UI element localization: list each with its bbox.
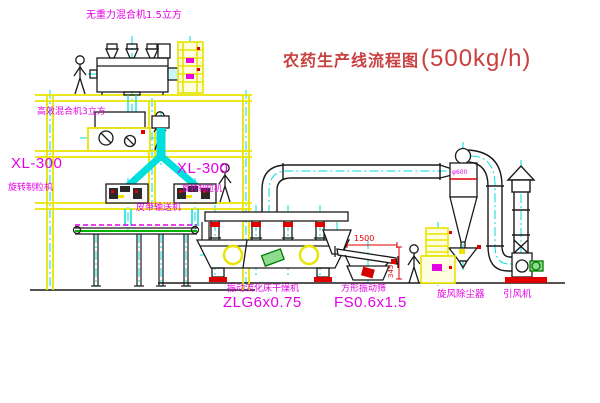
granulator-mid-model-label: XL-300 <box>177 161 228 176</box>
screen-model-label: FS0.6x1.5 <box>334 295 407 310</box>
belt-conveyor-label: 皮带输送机 <box>136 204 181 213</box>
dimension-width-label: 1500 <box>354 235 374 243</box>
cyclone-label: 旋风除尘器 <box>437 290 485 300</box>
title-capacity: (500kg/h) <box>421 45 531 73</box>
belt-conveyor <box>74 222 210 286</box>
title-text: 农药生产线流程图 <box>283 47 419 71</box>
exhaust-stack <box>508 166 534 253</box>
process-flow-diagram: 无重力混合机1.5立方 农药生产线流程图 (500kg/h) 高效混合机3立方 … <box>0 0 600 403</box>
bucket-elevator-2 <box>421 228 455 283</box>
dryer-model-label: ZLG6x0.75 <box>223 295 302 310</box>
screen-name-label: 方形振动筛 <box>341 285 386 294</box>
granulator-left <box>106 184 148 203</box>
granulator-mid-name-label: 旋转制粒机 <box>182 185 222 193</box>
granulator-left-model-label: XL-300 <box>11 156 62 171</box>
bucket-elevator-1 <box>178 42 203 93</box>
granulator-left-name-label: 旋转制粒机 <box>8 184 53 193</box>
diagram-title: 农药生产线流程图 (500kg/h) <box>283 45 531 73</box>
person-figure-top <box>74 56 86 94</box>
person-figure-ground <box>408 245 420 283</box>
high-efficiency-mixer <box>88 112 150 151</box>
cyclone-dust-collector <box>449 149 481 269</box>
cyclone-size-label: φ600 <box>452 170 467 176</box>
dryer-name-label: 振动流化床干燥机 <box>227 285 299 294</box>
dimension-height-label: 345 <box>388 265 395 278</box>
exhaust-duct <box>262 163 452 212</box>
high-efficiency-mixer-label: 高效混合机3立方 <box>37 108 106 117</box>
gravity-mixer-label: 无重力混合机1.5立方 <box>86 11 182 21</box>
fluid-bed-dryer <box>197 212 349 282</box>
fan-label: 引风机 <box>503 290 532 300</box>
